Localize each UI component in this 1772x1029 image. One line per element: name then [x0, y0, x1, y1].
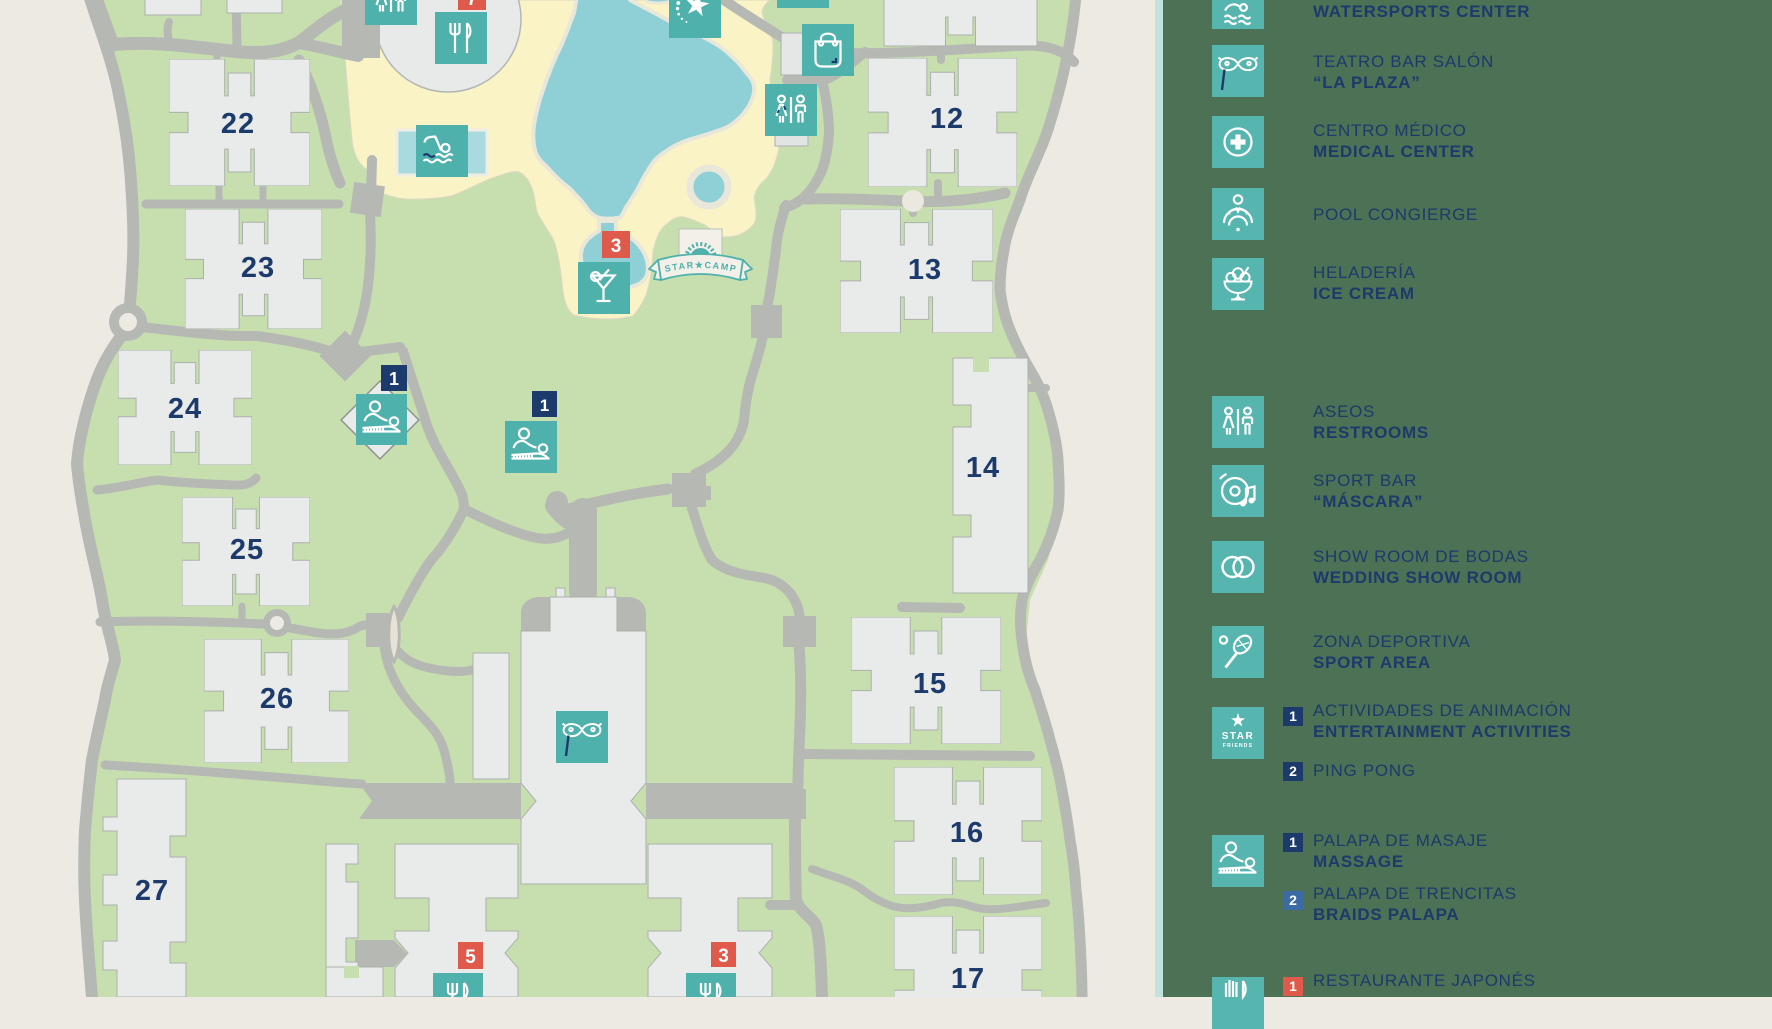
svg-text:16: 16: [950, 817, 984, 849]
svg-text:14: 14: [966, 452, 1000, 484]
svg-text:1: 1: [540, 396, 549, 415]
svg-text:23: 23: [241, 252, 275, 284]
svg-text:FRIENDS: FRIENDS: [1223, 743, 1253, 749]
svg-text:5: 5: [465, 947, 476, 968]
svg-text:27: 27: [135, 875, 169, 907]
svg-text:12: 12: [930, 103, 964, 135]
svg-text:17: 17: [951, 963, 985, 995]
svg-text:3: 3: [718, 946, 729, 967]
svg-text:1: 1: [389, 369, 399, 389]
svg-text:3: 3: [611, 236, 622, 257]
svg-text:7: 7: [467, 0, 478, 10]
svg-text:24: 24: [168, 393, 202, 425]
svg-text:STAR: STAR: [1222, 731, 1254, 742]
svg-text:22: 22: [221, 108, 255, 140]
svg-text:15: 15: [913, 668, 947, 700]
svg-text:13: 13: [908, 254, 942, 286]
svg-text:26: 26: [260, 683, 294, 715]
svg-text:25: 25: [230, 534, 264, 566]
